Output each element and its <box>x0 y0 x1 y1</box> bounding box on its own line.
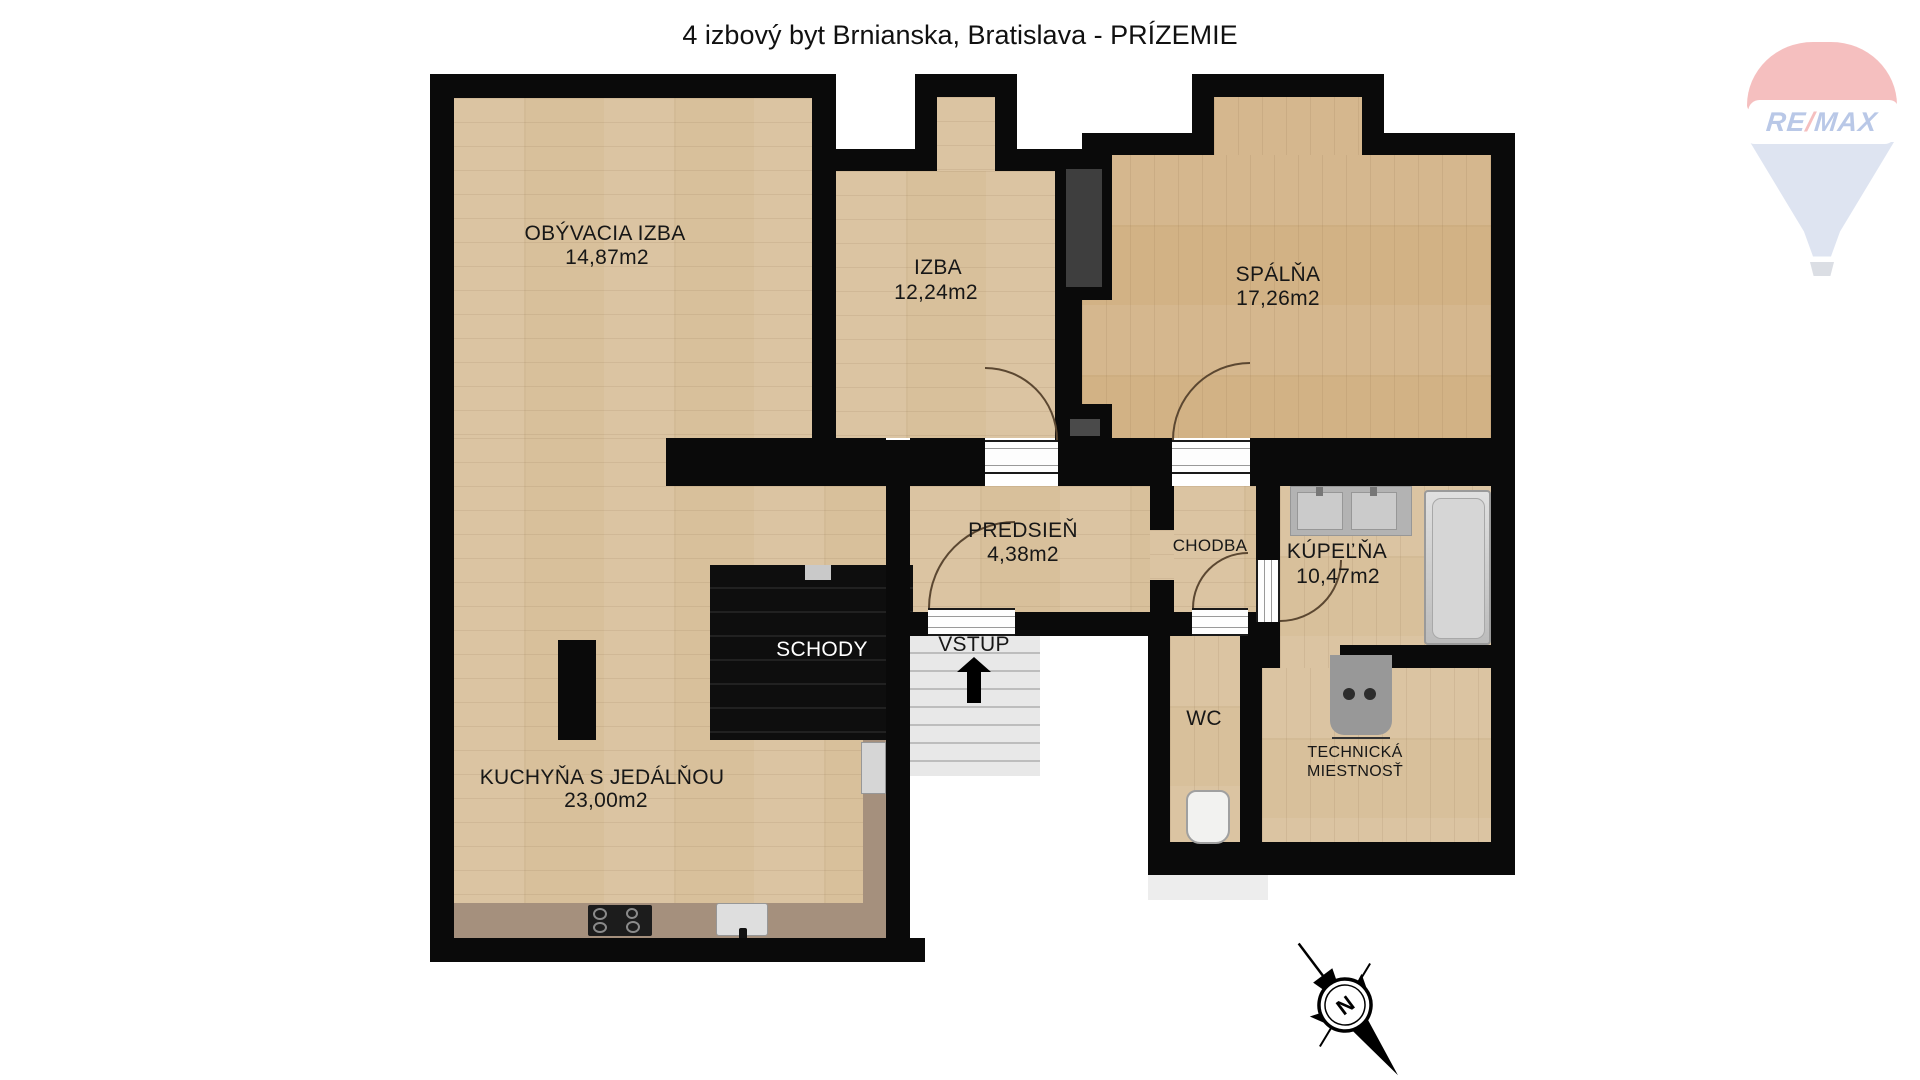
sink-faucet-icon <box>1316 487 1323 496</box>
stairs-landing-tab <box>805 565 831 580</box>
page-title: 4 izbový byt Brnianska, Bratislava - PRÍ… <box>0 20 1920 51</box>
wall <box>1148 842 1515 875</box>
door-entry <box>928 608 1015 636</box>
remax-logo-text: RE/MAX <box>1745 100 1900 144</box>
room-label-predsien: PREDSIEŇ <box>968 519 1078 543</box>
wall <box>666 438 886 486</box>
wall <box>1192 74 1384 97</box>
room-area-obyvacia: 14,87m2 <box>565 246 649 270</box>
wall <box>1256 622 1280 668</box>
room-label-chodba: CHODBA <box>1173 536 1248 556</box>
wall <box>430 74 454 962</box>
remax-text-re: RE <box>1765 107 1808 138</box>
exterior-pad <box>1148 875 1268 900</box>
burner-icon <box>626 921 640 933</box>
boiler-knob-icon <box>1343 688 1355 700</box>
shaft-niche <box>1066 169 1102 287</box>
wall <box>910 438 985 486</box>
room-label-izba: IZBA <box>914 256 962 280</box>
burner-icon <box>593 908 607 920</box>
sink-faucet-icon <box>1370 487 1377 496</box>
room-area-kuchyna: 23,00m2 <box>564 789 648 813</box>
wall <box>1148 612 1192 636</box>
room-label-wc: WC <box>1186 707 1222 731</box>
door-wc <box>1192 608 1248 636</box>
wall <box>886 440 910 962</box>
room-label-vstup: VSTUP <box>938 633 1010 657</box>
room-area-predsien: 4,38m2 <box>987 543 1059 567</box>
burner-icon <box>593 922 607 933</box>
floor-izba-bay <box>937 97 995 171</box>
room-label-spalna: SPÁLŇA <box>1236 263 1321 287</box>
floor-plan: 4 izbový byt Brnianska, Bratislava - PRÍ… <box>0 0 1920 1080</box>
room-label-obyvacia: OBÝVACIA IZBA <box>524 222 685 246</box>
wall <box>1082 133 1192 155</box>
wall <box>1148 636 1170 842</box>
room-label-schody: SCHODY <box>776 638 868 662</box>
toilet <box>1186 790 1230 844</box>
remax-text-max: MAX <box>1813 107 1879 138</box>
balloon-basket-icon <box>1810 262 1834 276</box>
balloon-bottom-icon <box>1747 142 1897 260</box>
kitchen-appliance <box>861 742 886 794</box>
door-izba <box>985 440 1058 474</box>
wall <box>430 74 836 98</box>
bathtub-basin <box>1432 498 1485 639</box>
bathtub <box>1424 490 1491 645</box>
burner-icon <box>626 908 638 919</box>
room-label-kuchyna: KUCHYŇA S JEDÁLŇOU <box>480 766 725 790</box>
wall <box>1250 438 1515 486</box>
boiler-knob-icon <box>1364 688 1376 700</box>
wall <box>1362 74 1384 155</box>
room-area-izba: 12,24m2 <box>894 281 978 305</box>
boiler-appliance <box>1330 655 1392 735</box>
wall <box>1256 486 1280 560</box>
floor-bedroom-bay <box>1214 97 1362 155</box>
cooktop <box>588 905 652 936</box>
kitchen-counter-bottom <box>454 903 886 938</box>
wall <box>430 938 925 962</box>
wall <box>812 74 836 486</box>
room-area-spalna: 17,26m2 <box>1236 287 1320 311</box>
bathroom-sink <box>1297 492 1343 530</box>
wall <box>995 74 1017 171</box>
floor-living-kitchen-passage <box>454 438 666 486</box>
room-label-technicka: TECHNICKÁ <box>1307 744 1402 762</box>
floor-hall-opening <box>1150 530 1174 580</box>
kitchen-island <box>558 640 596 740</box>
remax-watermark: RE/MAX <box>1742 42 1902 277</box>
room-label-technicka-2: MIESTNOSŤ <box>1307 763 1403 781</box>
compass-north-icon: N <box>1245 920 1445 1080</box>
wall <box>812 149 915 171</box>
room-area-kupelna: 10,47m2 <box>1296 565 1380 589</box>
shaft-niche-small <box>1070 419 1100 436</box>
door-bathroom <box>1256 560 1280 622</box>
wall <box>1058 438 1172 486</box>
wall <box>1491 133 1515 875</box>
wall <box>1015 612 1150 636</box>
wall <box>910 612 928 636</box>
entry-arrow-stem <box>967 671 981 703</box>
boiler-vent-line <box>1332 737 1390 739</box>
wall <box>1150 486 1174 530</box>
door-bedroom <box>1172 440 1250 474</box>
entry-arrow-icon <box>957 657 991 672</box>
room-label-kupelna: KÚPEĽŇA <box>1287 540 1387 564</box>
bathroom-sink <box>1351 492 1397 530</box>
